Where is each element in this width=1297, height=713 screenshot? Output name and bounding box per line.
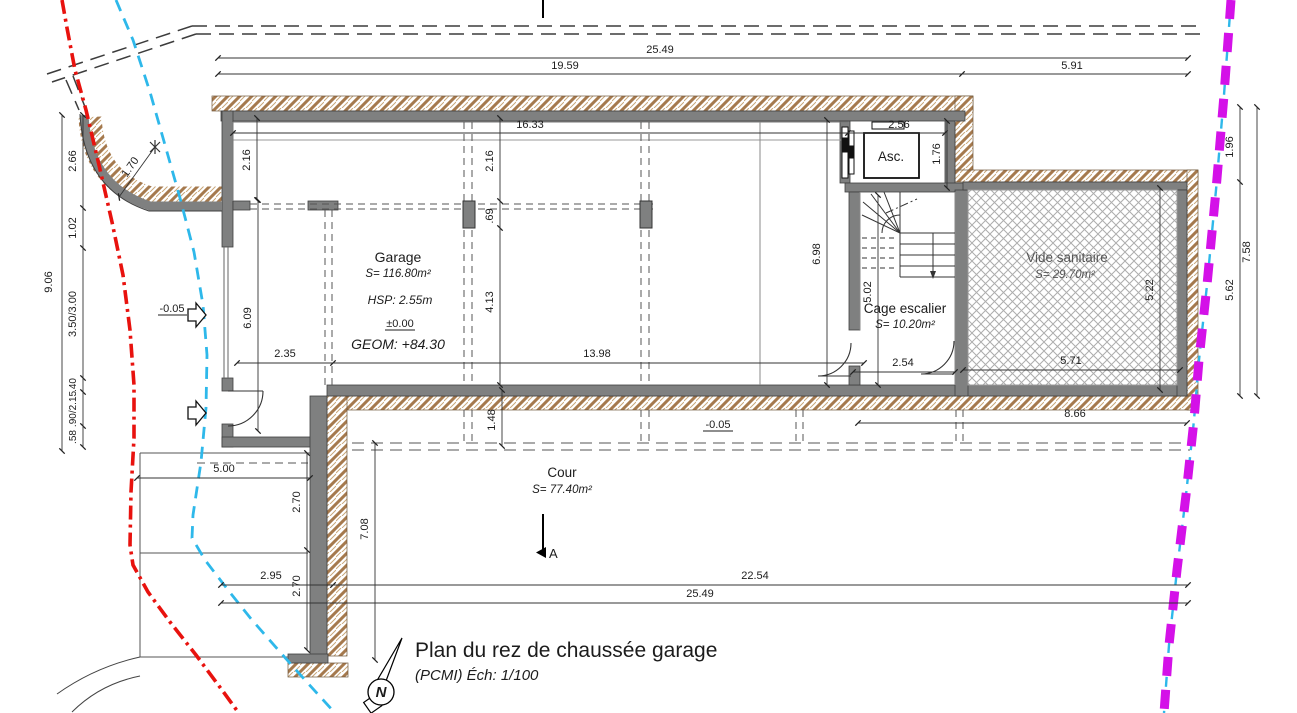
dim-left-266: 2.66 [67,150,79,171]
cour-label: Cour [547,465,577,480]
vide-sanitaire-label: Vide sanitaire [1026,250,1108,265]
level-entry-label: -0.05 [159,303,184,315]
dim-right-562: 5.62 [1224,279,1236,300]
dim-wall-mid-216: 2.16 [484,150,496,171]
cage-escalier-label: Cage escalier [864,301,947,316]
garage-area: S= 116.80m² [365,268,431,280]
dim-bottom-2254: 22.54 [741,570,769,582]
dim-top-right: 5.91 [1061,60,1082,72]
dim-bottom-total: 25.49 [686,588,714,600]
vide-sanitaire-area: S= 29.70m² [1035,269,1096,281]
dim-left-total: 9.06 [43,271,55,292]
dim-left-040: .40 [68,378,79,392]
north-label: N [376,684,388,701]
dim-bottom-1398: 13.98 [583,348,611,360]
garage-level: ±0.00 [386,318,413,330]
dim-left-102: 1.02 [67,217,79,238]
dim-left-garage-door: 3.50/3.00 [67,291,79,337]
dim-right-196: 1.96 [1224,136,1236,157]
dim-wall-mid-413: 4.13 [484,291,496,312]
floor-plan-canvas: 25.49 19.59 5.91 16.33 2.56 1.76 1.96 5.… [0,0,1297,713]
plan-title: Plan du rez de chaussée garage [415,639,717,662]
dim-bottom-235: 2.35 [274,348,295,360]
dim-wall-mid-069: .69 [484,208,496,223]
garage-hsp: HSP: 2.55m [368,293,433,307]
cage-escalier-area: S= 10.20m² [875,319,936,331]
dim-cour-708: 7.08 [359,518,371,539]
dim-top-total: 25.49 [646,44,674,56]
dim-garage-width: 16.33 [516,119,544,131]
level-cour-label: -0.05 [705,419,730,431]
dim-cour-270a: 2.70 [291,491,303,512]
dim-stair-height: 5.02 [862,281,874,302]
garage-geom: GEOM: +84.30 [351,336,445,352]
dim-vide-width: 5.71 [1060,355,1081,367]
garage-label: Garage [375,249,422,265]
cour-area: S= 77.40m² [532,484,593,496]
dim-top-garage: 19.59 [551,60,579,72]
dim-asc-height: 1.76 [931,143,943,164]
dim-right-total: 7.58 [1241,241,1253,262]
dim-cour-270b: 2.70 [291,575,303,596]
dim-bottom-295: 2.95 [260,570,281,582]
dim-cour-866: 8.66 [1064,408,1085,420]
dim-left-058: .58 [68,430,79,444]
dim-cour-band: 1.48 [486,409,498,430]
plan-subtitle: (PCMI) Éch: 1/100 [415,667,539,684]
dim-vide-height: 5.22 [1144,279,1156,300]
dim-stair-width: 2.54 [892,357,913,369]
dim-left-door: .90/2.15 [68,390,79,427]
dim-wall-left-216: 2.16 [241,149,253,170]
dim-right-698: 6.98 [811,243,823,264]
section-label: A [549,546,558,561]
dim-cour-500: 5.00 [213,463,234,475]
ascenseur-label: Asc. [878,149,904,164]
dim-left-609: 6.09 [242,307,254,328]
dim-asc-width: 2.56 [888,119,909,131]
